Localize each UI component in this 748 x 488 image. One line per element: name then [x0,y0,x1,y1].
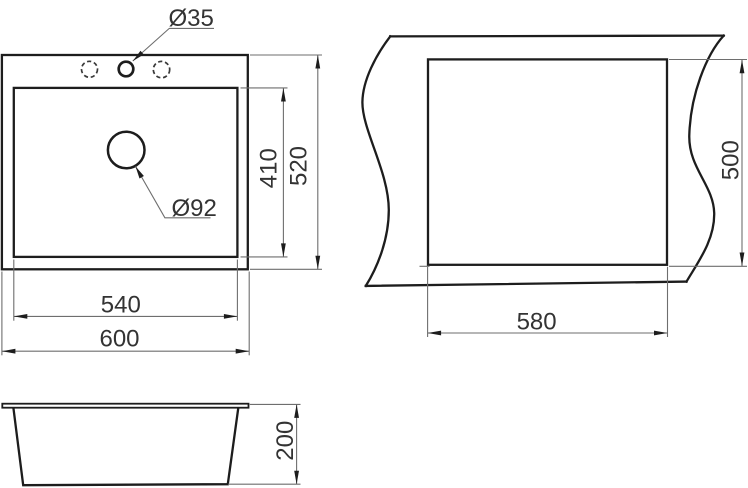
svg-text:410: 410 [256,148,283,188]
svg-text:520: 520 [286,146,313,186]
svg-text:580: 580 [517,308,557,335]
svg-text:600: 600 [99,326,139,353]
svg-text:200: 200 [272,421,299,461]
svg-text:540: 540 [101,292,141,319]
svg-text:500: 500 [717,140,744,180]
